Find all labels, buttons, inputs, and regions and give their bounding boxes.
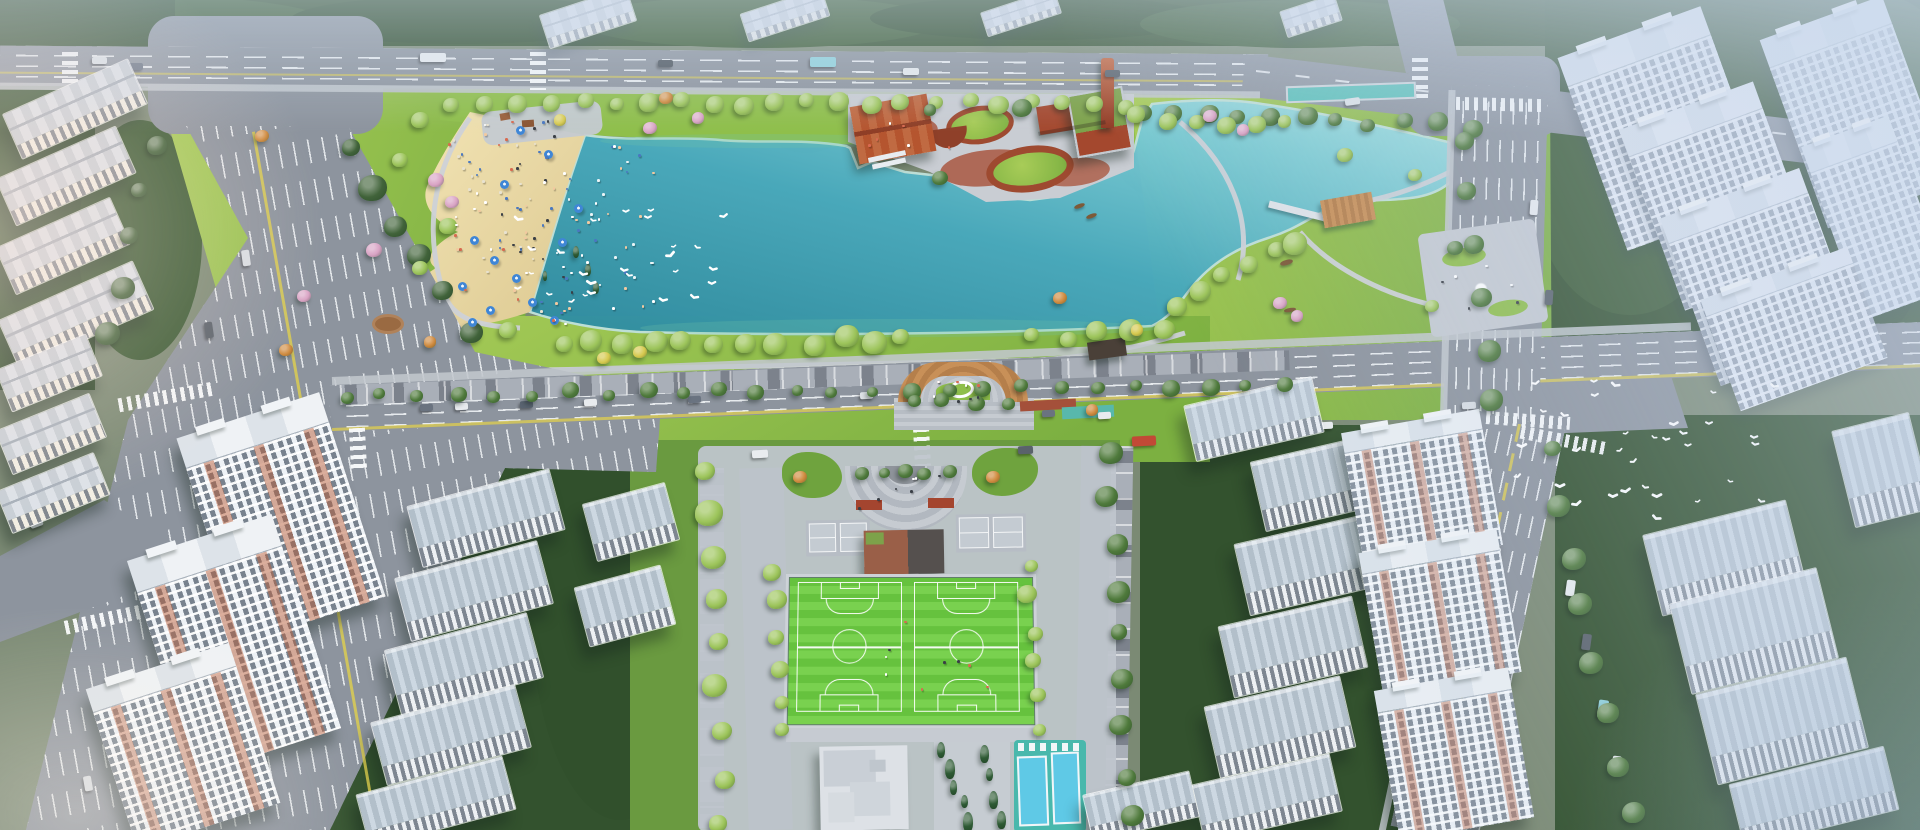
person <box>542 224 545 227</box>
flying-bird <box>1726 480 1733 485</box>
person <box>613 145 616 148</box>
person <box>546 219 549 222</box>
person <box>504 231 507 234</box>
person <box>455 224 458 227</box>
person <box>642 305 645 308</box>
person <box>888 649 891 652</box>
person <box>885 673 888 676</box>
person <box>1516 301 1519 304</box>
person <box>542 121 545 124</box>
person <box>517 298 520 301</box>
person <box>490 248 493 251</box>
flying-bird <box>1704 422 1712 426</box>
beach-umbrella <box>490 256 499 265</box>
person <box>560 312 563 315</box>
person <box>571 291 574 294</box>
person <box>651 262 654 265</box>
person <box>484 133 487 136</box>
person <box>889 122 892 125</box>
flying-bird <box>1662 437 1671 442</box>
person <box>464 289 467 292</box>
flying-bird <box>708 267 718 273</box>
person <box>652 172 655 175</box>
person <box>581 254 584 257</box>
person <box>570 272 573 275</box>
beach-umbrella <box>486 306 495 315</box>
person <box>612 307 615 310</box>
person <box>516 207 519 210</box>
people-birds-layer <box>0 0 1920 830</box>
person <box>614 256 617 259</box>
person <box>511 121 514 124</box>
flying-bird <box>688 294 699 302</box>
person <box>499 239 502 242</box>
person <box>512 244 515 247</box>
person <box>885 656 888 659</box>
person <box>553 187 556 190</box>
person <box>453 139 456 142</box>
flying-bird <box>514 287 522 291</box>
person <box>904 621 907 624</box>
flying-bird <box>1555 484 1566 490</box>
person <box>568 198 571 201</box>
flying-bird <box>1650 436 1657 441</box>
person <box>547 120 550 123</box>
flying-bird <box>719 214 729 221</box>
person <box>877 498 880 501</box>
person <box>505 138 508 141</box>
person <box>482 180 485 183</box>
flying-bird <box>693 245 701 251</box>
person <box>1468 307 1471 310</box>
flying-bird <box>657 298 667 305</box>
person <box>455 216 458 219</box>
person <box>902 125 905 128</box>
flying-bird <box>512 216 523 224</box>
person <box>639 215 642 218</box>
flying-bird <box>1514 473 1523 480</box>
person <box>454 234 457 237</box>
person <box>969 398 972 401</box>
person <box>599 284 602 287</box>
person <box>471 175 474 178</box>
flying-bird <box>1652 495 1663 501</box>
person <box>586 261 589 264</box>
flying-bird <box>1623 432 1630 437</box>
flying-bird <box>665 251 677 261</box>
person <box>566 188 569 191</box>
person <box>468 161 471 164</box>
flying-bird <box>1749 435 1758 440</box>
person <box>486 124 489 127</box>
beach-umbrella <box>528 298 537 307</box>
flying-bird <box>1768 384 1778 391</box>
person <box>542 258 545 261</box>
person <box>482 257 485 260</box>
person <box>968 664 971 667</box>
person <box>516 144 519 147</box>
person <box>448 143 451 146</box>
flying-bird <box>1571 501 1583 510</box>
person <box>461 153 464 156</box>
flying-bird <box>1709 391 1716 396</box>
person <box>1485 265 1488 268</box>
aerial-render <box>0 0 1920 830</box>
person <box>540 301 543 304</box>
flying-bird <box>528 272 534 276</box>
person <box>598 218 601 221</box>
person <box>571 216 574 219</box>
beach-umbrella <box>470 236 479 245</box>
person <box>633 276 636 279</box>
flying-bird <box>1750 442 1759 448</box>
person <box>607 213 610 216</box>
person <box>498 144 501 147</box>
person <box>562 276 565 279</box>
flying-bird <box>1641 485 1650 491</box>
person <box>956 381 959 384</box>
person <box>476 174 479 177</box>
person <box>632 243 635 246</box>
person <box>858 507 861 510</box>
person <box>915 477 918 480</box>
person <box>499 247 502 250</box>
person <box>478 210 481 213</box>
flying-bird <box>1630 458 1639 465</box>
person <box>462 167 465 170</box>
person <box>525 231 528 234</box>
person <box>519 208 522 211</box>
person <box>986 686 989 689</box>
person <box>519 183 522 186</box>
person <box>476 192 479 195</box>
person <box>459 248 462 251</box>
beach-umbrella <box>500 180 509 189</box>
person <box>652 300 655 303</box>
person <box>564 323 567 326</box>
flying-bird <box>671 245 677 249</box>
person <box>965 384 968 387</box>
person <box>910 490 913 493</box>
flying-bird <box>625 273 633 279</box>
flying-bird <box>708 282 717 287</box>
person <box>1441 281 1444 284</box>
flying-bird <box>1616 448 1624 454</box>
person <box>534 143 537 146</box>
person <box>876 138 879 141</box>
person <box>594 239 597 242</box>
person <box>562 266 565 269</box>
person <box>933 395 936 398</box>
person <box>948 146 951 149</box>
beach-umbrella <box>516 126 525 135</box>
person <box>555 302 558 305</box>
person <box>540 310 543 313</box>
flying-bird <box>1650 514 1662 523</box>
person <box>943 661 946 664</box>
person <box>538 151 541 154</box>
person <box>533 127 536 130</box>
flying-bird <box>578 272 588 279</box>
flying-bird <box>1685 444 1693 448</box>
person <box>519 246 522 249</box>
person <box>543 181 546 184</box>
beach-umbrella <box>468 318 477 327</box>
flying-bird <box>545 293 552 298</box>
flying-bird <box>1540 410 1548 415</box>
person <box>577 229 580 232</box>
person <box>505 197 508 200</box>
person <box>618 146 621 149</box>
person <box>921 688 924 691</box>
person <box>565 277 568 280</box>
person <box>532 258 535 261</box>
person <box>563 310 566 313</box>
person <box>638 154 641 157</box>
beach-umbrella <box>558 238 567 247</box>
person <box>553 135 556 138</box>
person <box>977 384 980 387</box>
person <box>895 488 898 491</box>
person <box>602 193 605 196</box>
person <box>457 155 460 158</box>
person <box>568 307 571 310</box>
person <box>957 400 960 403</box>
person <box>456 248 459 251</box>
flying-bird <box>1590 380 1598 384</box>
person <box>545 156 548 159</box>
person <box>626 161 629 164</box>
person <box>597 179 600 182</box>
person <box>624 287 627 290</box>
flying-bird <box>647 209 654 213</box>
person <box>552 319 555 322</box>
person <box>550 207 553 210</box>
person <box>479 168 482 171</box>
person <box>938 475 941 478</box>
person <box>625 246 628 249</box>
person <box>590 213 593 216</box>
flying-bird <box>1620 488 1632 496</box>
person <box>575 219 578 222</box>
person <box>569 178 572 181</box>
person <box>519 251 522 254</box>
flying-bird <box>555 249 565 257</box>
flying-bird <box>1591 393 1600 398</box>
person <box>1510 284 1513 287</box>
flying-bird <box>568 299 576 304</box>
person <box>868 144 871 147</box>
person <box>626 171 629 174</box>
flying-bird <box>1559 412 1569 419</box>
person <box>977 396 980 399</box>
flying-bird <box>1516 444 1527 450</box>
person <box>525 205 528 208</box>
person <box>563 172 566 175</box>
person <box>510 168 513 171</box>
flying-bird <box>589 218 597 223</box>
flying-bird <box>1608 494 1619 500</box>
flying-bird <box>1609 382 1620 390</box>
flying-bird <box>1668 422 1678 428</box>
flying-bird <box>1678 431 1688 437</box>
person <box>524 237 527 240</box>
person <box>529 198 532 201</box>
person <box>501 213 504 216</box>
person <box>937 381 940 384</box>
flying-bird <box>1572 448 1583 455</box>
person <box>499 191 502 194</box>
person <box>533 237 536 240</box>
person <box>484 201 487 204</box>
flying-bird <box>623 210 631 214</box>
flying-bird <box>644 216 652 220</box>
person <box>1454 275 1457 278</box>
flying-bird <box>1531 380 1541 387</box>
flying-bird <box>1695 500 1701 504</box>
flying-bird <box>673 270 680 274</box>
beach-umbrella <box>574 204 583 213</box>
person <box>620 167 623 170</box>
person <box>519 163 522 166</box>
flying-bird <box>1757 499 1766 505</box>
person <box>516 167 519 170</box>
person <box>473 208 476 211</box>
person <box>502 248 505 251</box>
person <box>907 144 910 147</box>
person <box>486 271 489 274</box>
person <box>468 188 471 191</box>
beach-umbrella <box>512 274 521 283</box>
person <box>595 202 598 205</box>
flying-bird <box>582 294 588 298</box>
person <box>957 660 960 663</box>
flying-bird <box>585 281 597 288</box>
